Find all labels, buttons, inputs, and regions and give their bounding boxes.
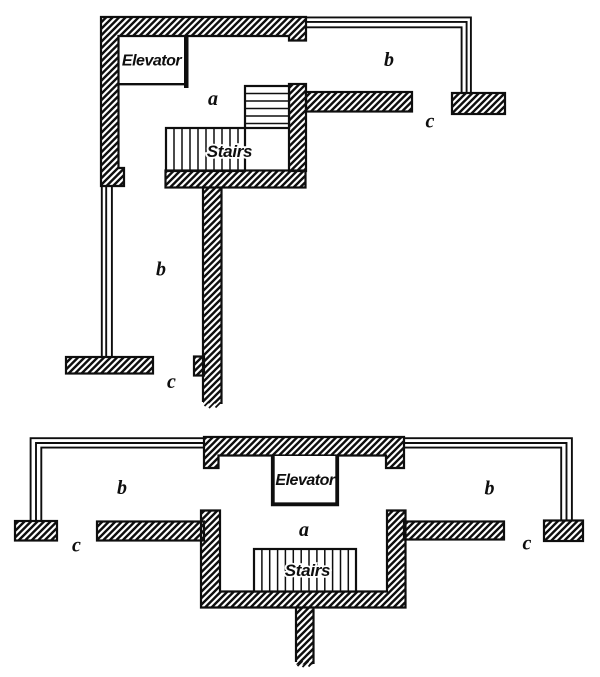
svg-text:a: a <box>299 519 309 541</box>
svg-text:a: a <box>208 88 218 110</box>
svg-text:Stairs: Stairs <box>207 142 252 161</box>
svg-text:b: b <box>156 259 166 281</box>
svg-text:Elevator: Elevator <box>122 52 182 69</box>
svg-text:c: c <box>167 371 176 393</box>
svg-text:c: c <box>72 535 81 557</box>
svg-text:b: b <box>384 49 394 71</box>
svg-text:b: b <box>485 478 495 500</box>
svg-text:Elevator: Elevator <box>275 472 335 489</box>
svg-text:Stairs: Stairs <box>285 561 330 580</box>
svg-text:c: c <box>426 111 435 133</box>
svg-text:b: b <box>117 477 127 499</box>
svg-text:c: c <box>523 533 532 555</box>
